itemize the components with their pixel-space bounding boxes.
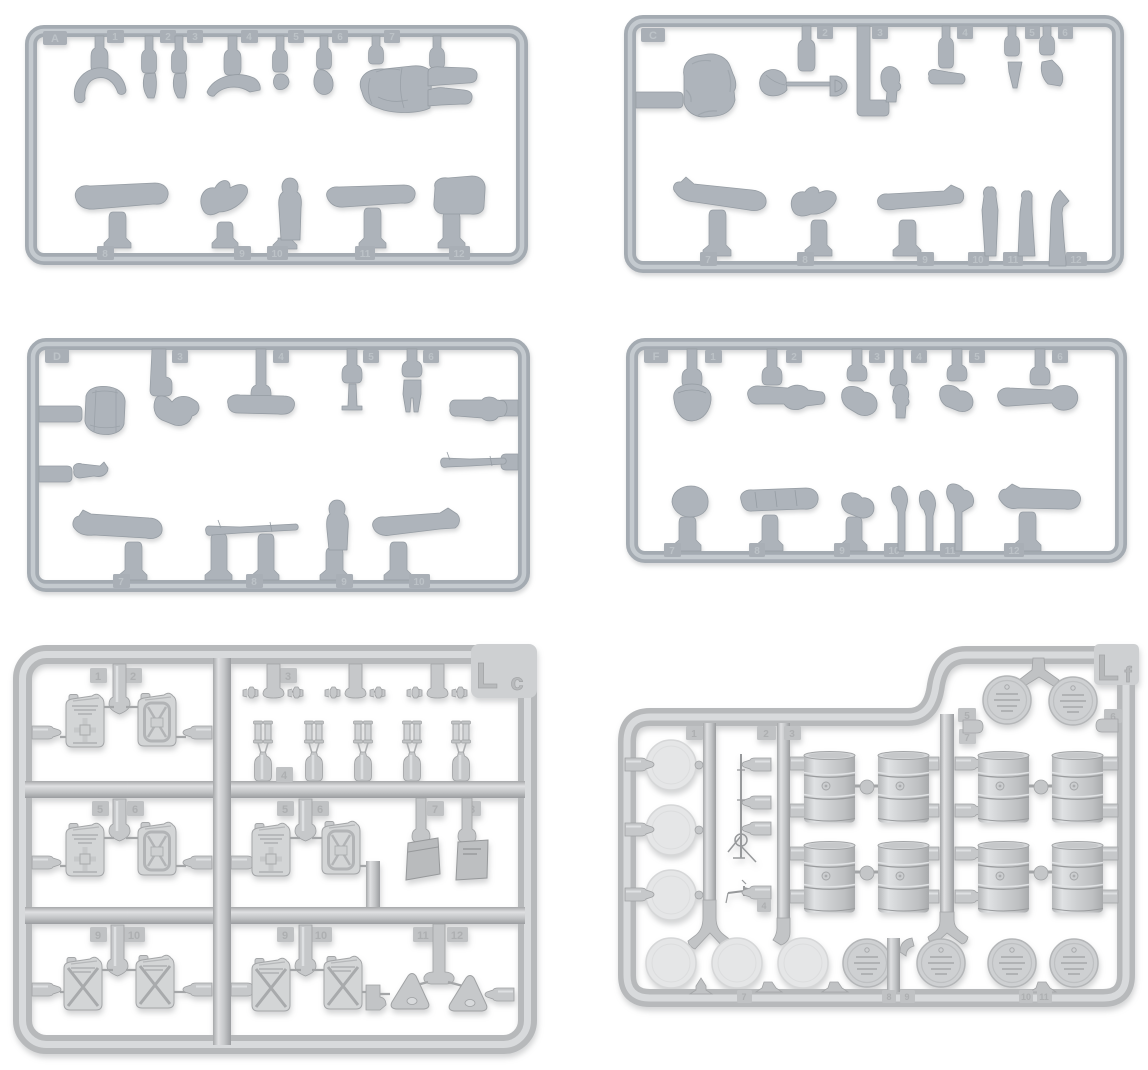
svg-text:F: F	[653, 351, 660, 363]
svg-text:7: 7	[964, 733, 970, 744]
svg-text:D: D	[53, 351, 61, 363]
svg-text:4: 4	[281, 770, 288, 782]
svg-text:A: A	[51, 33, 59, 45]
svg-text:L: L	[1097, 647, 1119, 688]
svg-text:C: C	[649, 30, 657, 42]
svg-text:4: 4	[761, 901, 766, 911]
svg-text:c: c	[511, 669, 524, 695]
svg-text:L: L	[476, 655, 498, 696]
svg-text:f: f	[1124, 662, 1132, 687]
